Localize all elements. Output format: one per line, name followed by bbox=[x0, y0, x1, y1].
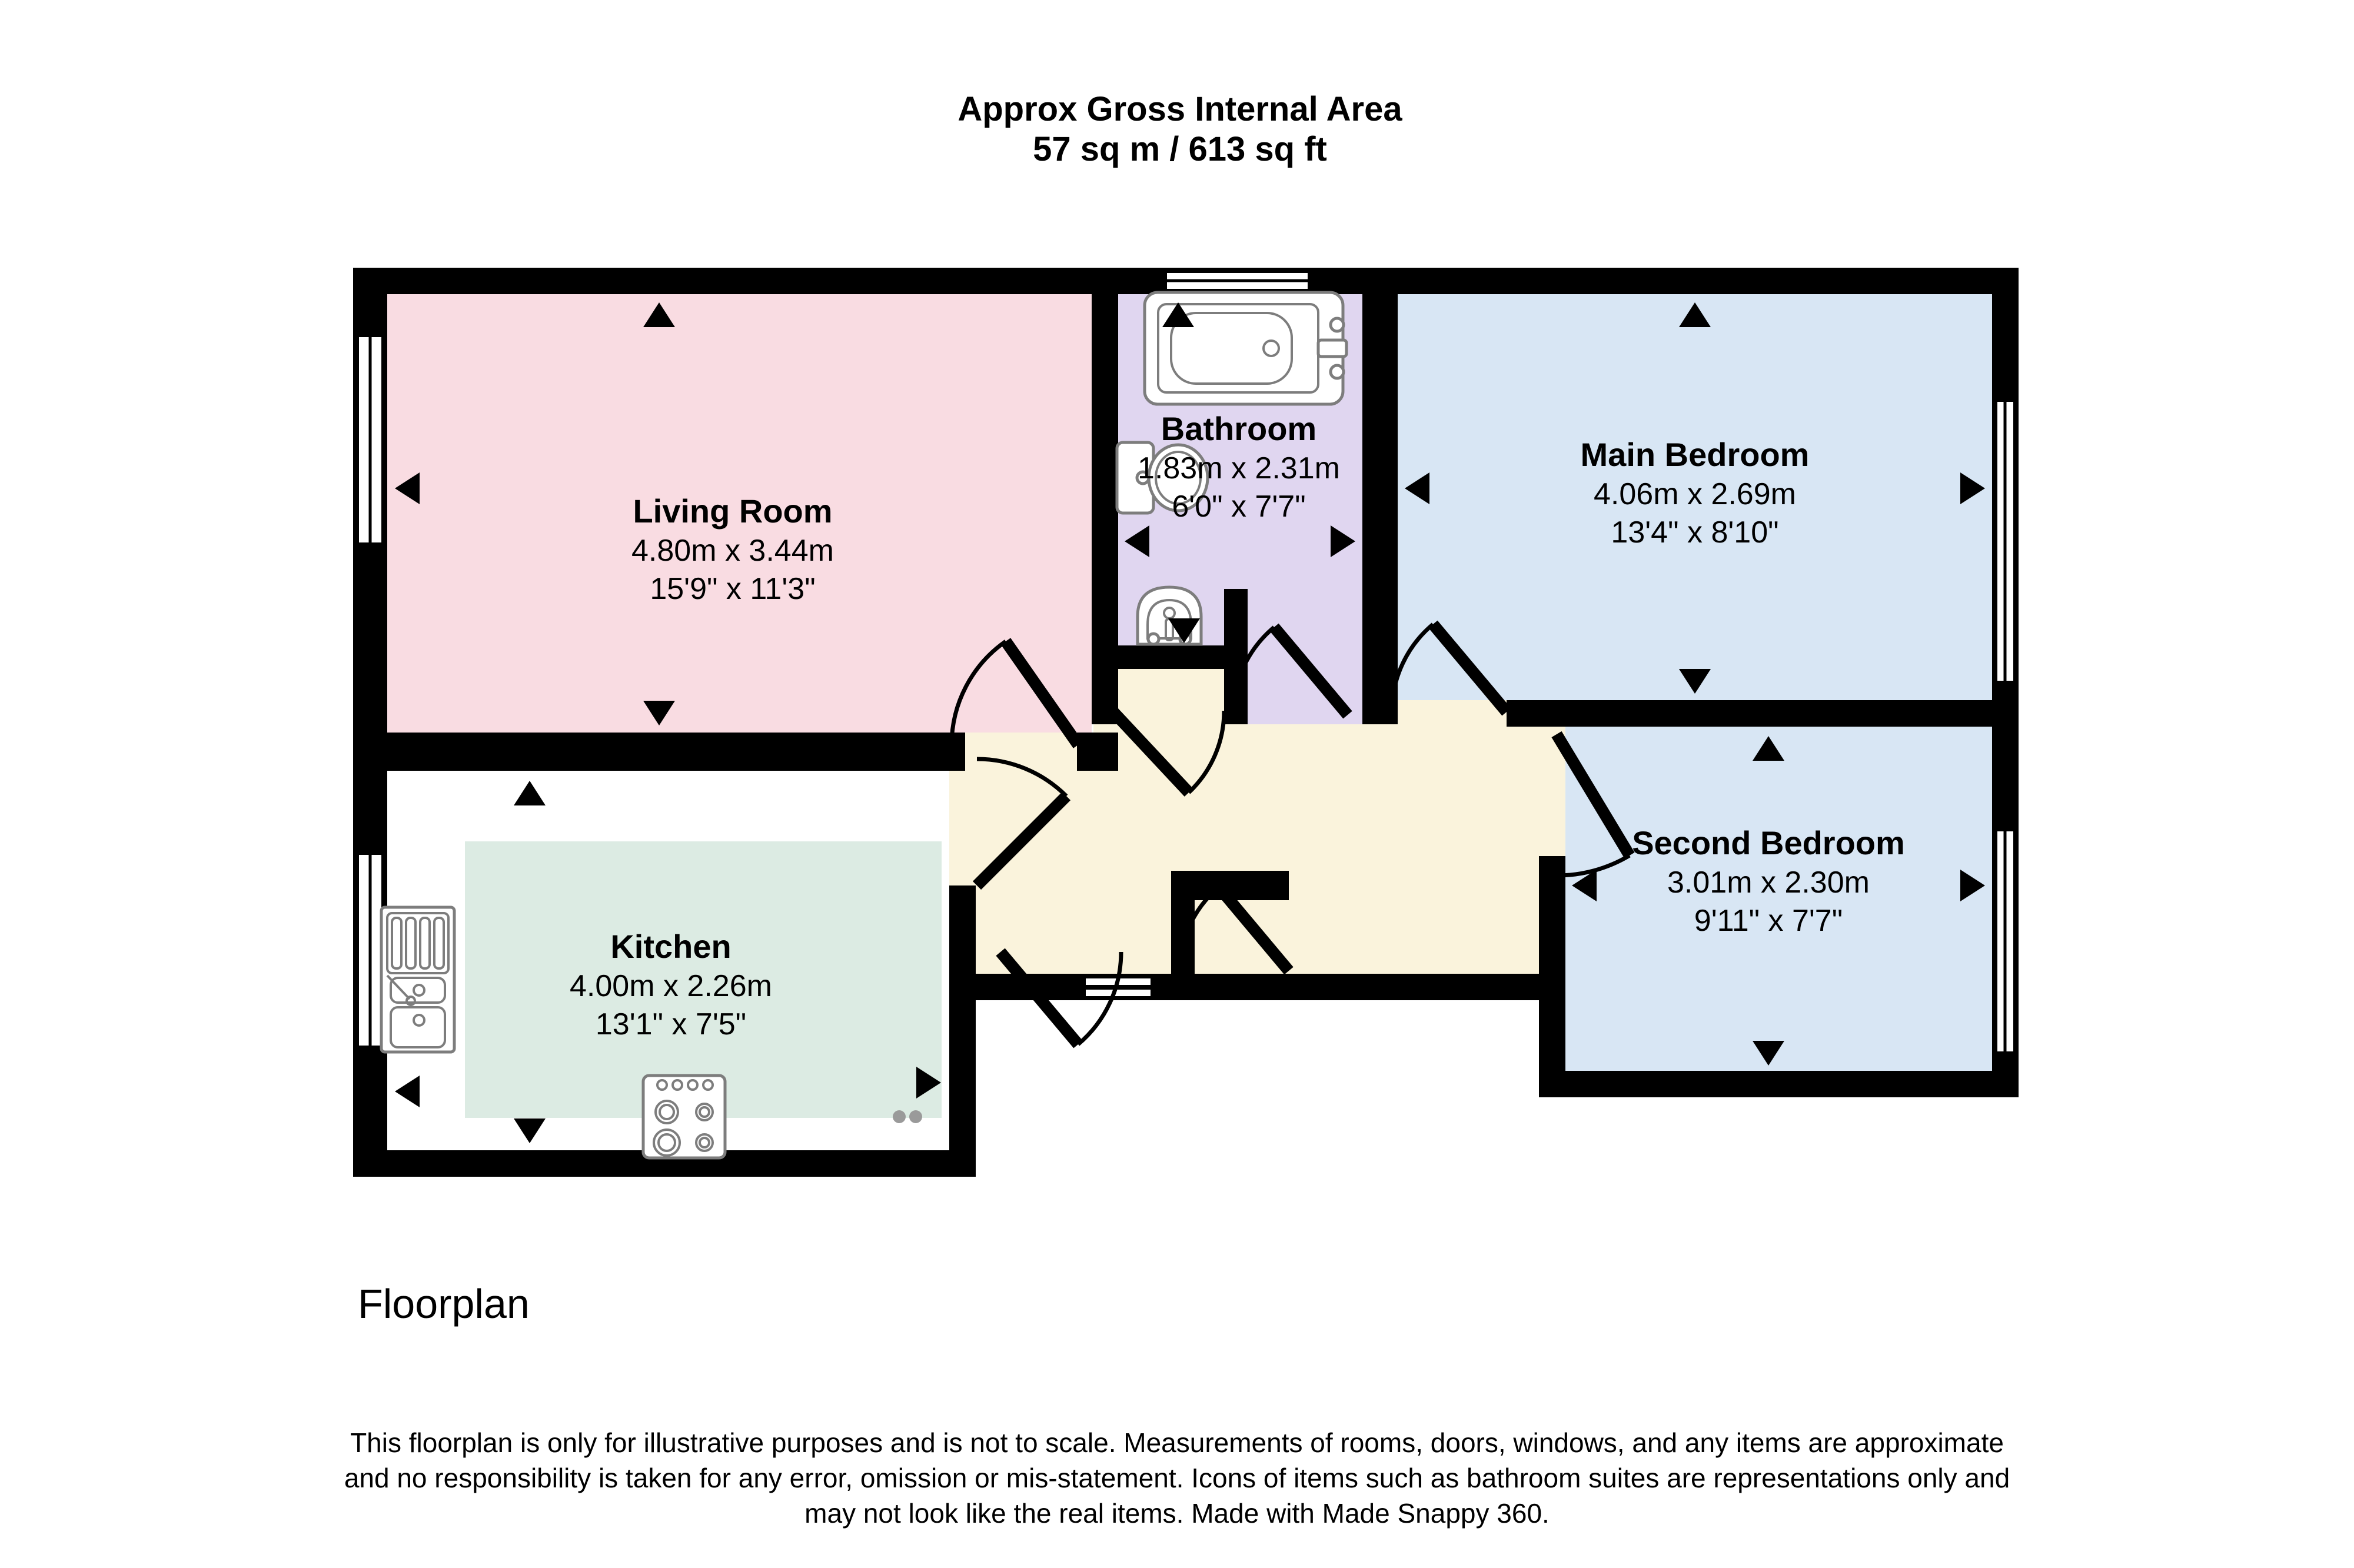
label-bathroom-imperial: 6'0" x 7'7" bbox=[1172, 490, 1305, 524]
wall-hall-bottom-b bbox=[1151, 974, 1565, 1000]
window-bathroom-top-icon bbox=[1165, 271, 1309, 291]
label-kitchen-metric: 4.00m x 2.26m bbox=[570, 969, 772, 1003]
hob-icon bbox=[643, 1076, 725, 1158]
basin-icon bbox=[1138, 587, 1201, 644]
wall-bathroom-stub bbox=[1224, 589, 1248, 724]
label-kitchen-name: Kitchen bbox=[610, 928, 731, 965]
threshold-bar bbox=[1086, 990, 1151, 996]
label-main-bedroom-metric: 4.06m x 2.69m bbox=[1594, 477, 1796, 511]
label-bathroom-name: Bathroom bbox=[1161, 410, 1316, 447]
hallway-bedroom-doorway bbox=[1398, 700, 1507, 727]
disclaimer-line2: and no responsibility is taken for any e… bbox=[344, 1463, 2010, 1493]
window-main-bedroom-right-icon bbox=[1996, 400, 2015, 683]
label-living-room-imperial: 15'9" x 11'3" bbox=[650, 572, 815, 606]
disclaimer-line1: This floorplan is only for illustrative … bbox=[350, 1427, 2004, 1458]
label-bathroom-metric: 1.83m x 2.31m bbox=[1138, 451, 1340, 485]
label-second-bedroom-name: Second Bedroom bbox=[1632, 824, 1905, 861]
floorplan-canvas: Approx Gross Internal Area 57 sq m / 613… bbox=[0, 0, 2354, 1568]
wall-bedroom-divider bbox=[1507, 700, 2019, 727]
hallway-cupboard-recess bbox=[1118, 668, 1224, 727]
label-kitchen-imperial: 13'1" x 7'5" bbox=[596, 1007, 746, 1041]
wall-kitchen-right bbox=[949, 885, 976, 1177]
label-second-bedroom-imperial: 9'11" x 7'7" bbox=[1694, 904, 1843, 938]
label-main-bedroom-imperial: 13'4" x 8'10" bbox=[1611, 515, 1778, 550]
floorplan-caption: Floorplan bbox=[358, 1281, 530, 1327]
disclaimer-line3: may not look like the real items. Made w… bbox=[804, 1498, 1550, 1529]
label-second-bedroom-metric: 3.01m x 2.30m bbox=[1667, 865, 1870, 900]
page-title-line2: 57 sq m / 613 sq ft bbox=[1033, 130, 1327, 168]
label-living-room-name: Living Room bbox=[633, 492, 832, 530]
page-title-line1: Approx Gross Internal Area bbox=[957, 90, 1402, 128]
wall-second-bed-bottom bbox=[1539, 1071, 2019, 1097]
wall-living-bottom-b bbox=[1077, 733, 1118, 771]
wall-bathroom-bedroom-divider bbox=[1362, 268, 1398, 724]
floorplan-page: Approx Gross Internal Area 57 sq m / 613… bbox=[0, 0, 2354, 1568]
wall-basin-enclosure bbox=[1092, 645, 1224, 669]
window-kitchen-left-icon bbox=[357, 853, 383, 1047]
kitchen-sink-icon bbox=[381, 907, 454, 1052]
label-main-bedroom-name: Main Bedroom bbox=[1581, 436, 1810, 473]
window-living-left-icon bbox=[357, 335, 383, 544]
window-second-bedroom-right-icon bbox=[1996, 830, 2015, 1053]
label-living-room-metric: 4.80m x 3.44m bbox=[631, 534, 834, 568]
wall-living-bottom-a bbox=[387, 733, 965, 771]
